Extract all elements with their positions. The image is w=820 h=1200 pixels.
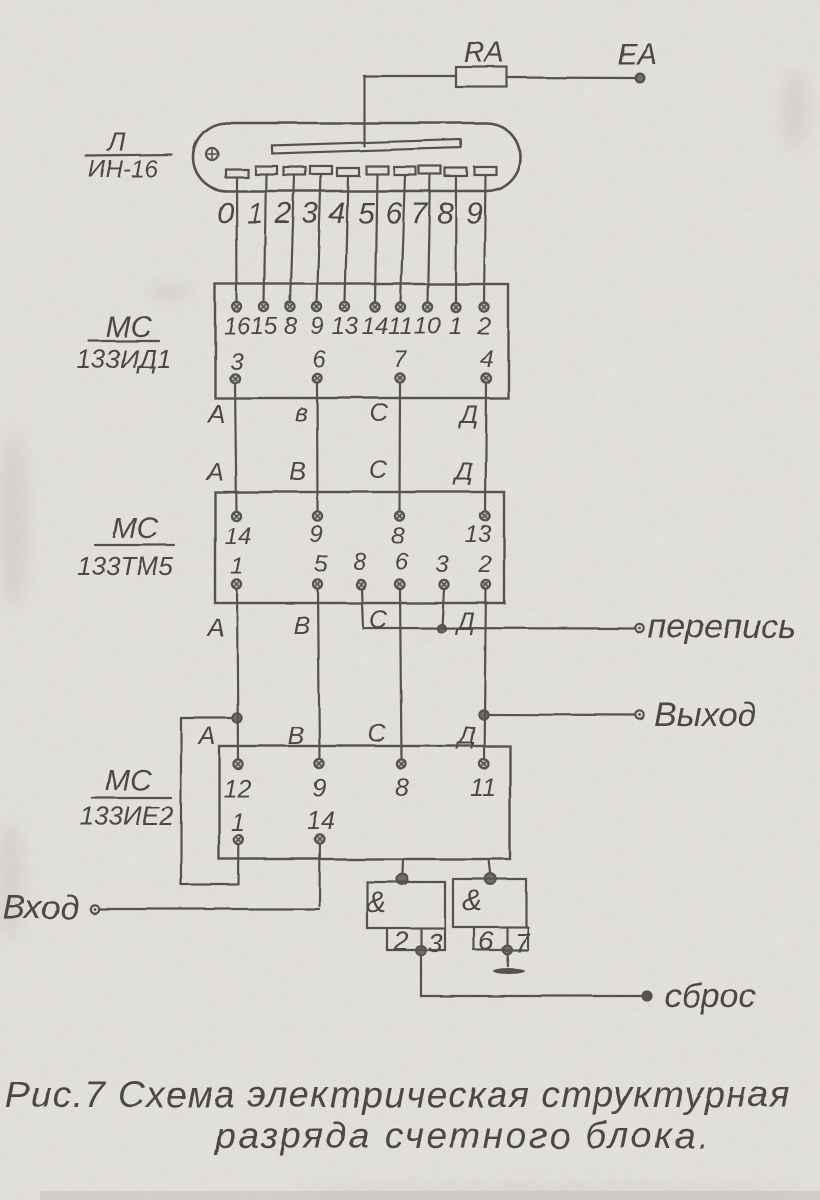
svg-text:Д: Д bbox=[457, 401, 478, 429]
svg-text:С: С bbox=[369, 606, 388, 634]
svg-text:6: 6 bbox=[312, 346, 326, 373]
svg-text:16: 16 bbox=[224, 313, 251, 340]
svg-text:EA: EA bbox=[617, 38, 657, 71]
svg-text:Выход: Выход bbox=[654, 696, 756, 734]
svg-text:4: 4 bbox=[329, 197, 346, 230]
svg-text:1: 1 bbox=[449, 313, 462, 340]
svg-text:11: 11 bbox=[388, 313, 413, 340]
svg-text:RA: RA bbox=[464, 37, 504, 69]
svg-text:9: 9 bbox=[313, 775, 327, 803]
svg-text:С: С bbox=[368, 720, 387, 748]
svg-text:3: 3 bbox=[229, 348, 243, 375]
svg-text:6: 6 bbox=[395, 549, 409, 576]
svg-text:в: в bbox=[294, 399, 307, 427]
svg-text:перепись: перепись bbox=[648, 608, 796, 646]
svg-text:9: 9 bbox=[310, 313, 323, 340]
svg-text:8: 8 bbox=[437, 197, 454, 230]
svg-text:10: 10 bbox=[414, 313, 441, 340]
svg-text:133ИД1: 133ИД1 bbox=[77, 344, 172, 374]
svg-text:2: 2 bbox=[477, 551, 491, 578]
svg-text:8: 8 bbox=[284, 313, 298, 340]
svg-text:6: 6 bbox=[478, 926, 494, 956]
svg-text:5: 5 bbox=[314, 551, 328, 578]
svg-text:8: 8 bbox=[391, 523, 405, 550]
svg-text:А: А bbox=[206, 400, 225, 428]
svg-text:4: 4 bbox=[480, 346, 493, 373]
svg-text:2: 2 bbox=[274, 197, 292, 230]
svg-text:8: 8 bbox=[395, 774, 409, 802]
svg-text:3: 3 bbox=[435, 551, 449, 578]
svg-text:ИН-16: ИН-16 bbox=[88, 156, 158, 183]
svg-text:12: 12 bbox=[223, 775, 251, 803]
svg-text:В: В bbox=[294, 612, 311, 640]
svg-text:5: 5 bbox=[358, 197, 375, 230]
svg-text:11: 11 bbox=[470, 774, 496, 802]
svg-text:0: 0 bbox=[217, 197, 234, 230]
svg-text:1: 1 bbox=[231, 809, 245, 837]
svg-text:2: 2 bbox=[476, 313, 490, 340]
svg-text:7: 7 bbox=[411, 197, 429, 230]
svg-text:&: & bbox=[462, 884, 482, 917]
svg-text:13: 13 bbox=[465, 521, 492, 548]
svg-text:сброс: сброс bbox=[665, 977, 756, 1015]
svg-text:Вход: Вход bbox=[3, 889, 79, 927]
svg-text:2: 2 bbox=[392, 926, 408, 956]
svg-text:9: 9 bbox=[466, 197, 483, 230]
svg-text:А: А bbox=[197, 722, 216, 750]
svg-text:&: & bbox=[366, 886, 386, 919]
svg-text:В: В bbox=[290, 458, 307, 486]
svg-text:3: 3 bbox=[302, 197, 319, 230]
svg-text:МС: МС bbox=[112, 512, 159, 545]
svg-text:14: 14 bbox=[362, 313, 389, 340]
svg-text:15: 15 bbox=[251, 313, 278, 340]
svg-text:8: 8 bbox=[353, 549, 367, 576]
svg-text:МС: МС bbox=[105, 764, 152, 797]
svg-text:6: 6 bbox=[386, 197, 403, 230]
svg-text:3: 3 bbox=[427, 928, 442, 958]
svg-text:13: 13 bbox=[332, 313, 359, 340]
svg-text:МС: МС bbox=[106, 311, 153, 344]
svg-text:1: 1 bbox=[230, 553, 243, 580]
svg-text:9: 9 bbox=[309, 521, 322, 548]
svg-text:7: 7 bbox=[393, 346, 408, 373]
svg-text:разряда счетного блока.: разряда счетного блока. bbox=[214, 1115, 710, 1156]
svg-text:14: 14 bbox=[307, 807, 335, 835]
svg-text:Д: Д bbox=[452, 458, 473, 486]
svg-text:Рис.7 Схема электрическая стру: Рис.7 Схема электрическая структурная bbox=[5, 1074, 792, 1115]
svg-text:14: 14 bbox=[225, 523, 252, 550]
svg-text:А: А bbox=[205, 458, 224, 486]
svg-text:Л: Л bbox=[106, 127, 126, 157]
svg-text:С: С bbox=[369, 456, 388, 484]
svg-text:С: С bbox=[370, 399, 389, 427]
svg-text:133ТМ5: 133ТМ5 bbox=[77, 551, 173, 581]
svg-text:1: 1 bbox=[247, 197, 264, 230]
svg-text:А: А bbox=[206, 614, 225, 642]
svg-text:Д: Д bbox=[454, 608, 475, 636]
svg-text:7: 7 bbox=[514, 928, 530, 958]
svg-text:133ИЕ2: 133ИЕ2 bbox=[80, 801, 174, 831]
